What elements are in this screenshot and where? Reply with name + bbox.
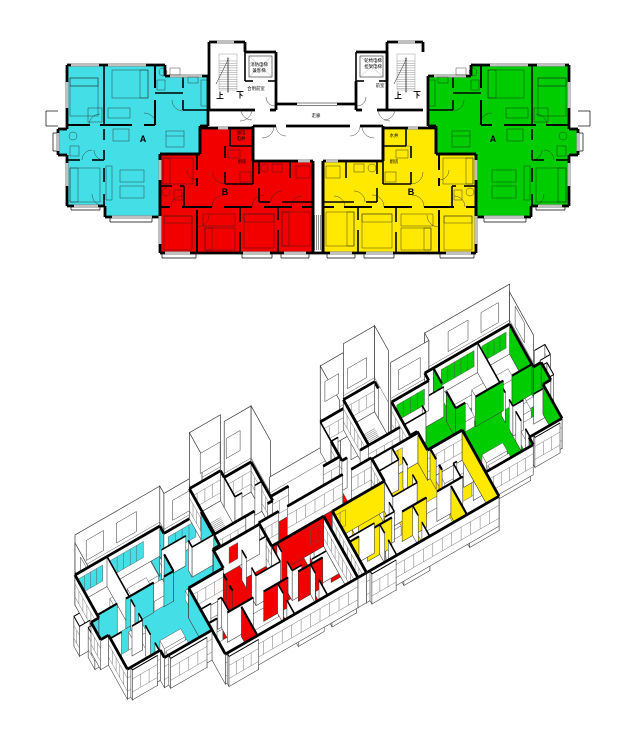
svg-text:B: B: [408, 187, 415, 197]
svg-text:电井: 电井: [237, 135, 246, 142]
svg-text:轮椅电梯: 轮椅电梯: [364, 57, 382, 64]
svg-text:强电: 强电: [237, 129, 246, 136]
svg-text:水井: 水井: [390, 132, 399, 139]
svg-text:消防电梯: 消防电梯: [250, 61, 268, 68]
svg-text:B: B: [222, 187, 229, 197]
svg-text:前室: 前室: [376, 82, 385, 89]
svg-text:兼客梯: 兼客梯: [252, 67, 266, 74]
svg-text:合用前室: 合用前室: [247, 85, 265, 92]
svg-text:走廊: 走廊: [312, 112, 321, 119]
svg-text:A: A: [490, 134, 497, 144]
svg-text:担架电梯: 担架电梯: [364, 63, 382, 70]
svg-text:厨房: 厨房: [390, 158, 399, 165]
svg-text:厨房: 厨房: [238, 158, 247, 165]
svg-text:A: A: [140, 134, 147, 144]
